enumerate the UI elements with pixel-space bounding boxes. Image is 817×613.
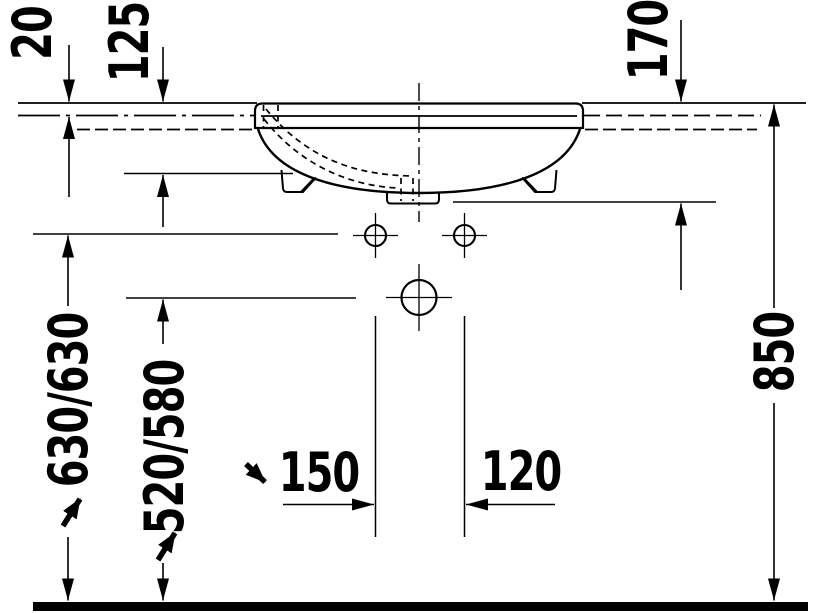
dimension-labels: 20 125 170 630/630 520/580 850 150 120 <box>2 0 807 534</box>
dim-label-120: 120 <box>481 441 561 504</box>
dim-label-170: 170 <box>618 0 681 80</box>
floor-bar <box>33 602 808 611</box>
pointer-arrow-630-icon <box>63 499 80 526</box>
left-foot-notch <box>301 179 314 192</box>
channel-curve-lower <box>264 119 398 188</box>
dim-label-125: 125 <box>99 2 162 82</box>
reference-lines <box>18 103 806 298</box>
right-foot-notch <box>525 179 538 192</box>
dim-label-850: 850 <box>744 312 807 392</box>
washbasin-outline <box>255 83 583 222</box>
dim-label-150: 150 <box>279 442 359 505</box>
dim-label-20: 20 <box>2 6 65 60</box>
connection-points <box>353 213 487 537</box>
dim-label-630: 630/630 <box>38 313 101 488</box>
pointer-arrow-520-icon <box>158 533 175 560</box>
technical-drawing-page: 20 125 170 630/630 520/580 850 150 120 <box>0 0 817 613</box>
dim-label-520: 520/580 <box>134 360 197 535</box>
washbasin-dimension-drawing: 20 125 170 630/630 520/580 850 150 120 <box>0 0 817 613</box>
pointer-arrow-150-icon <box>246 464 265 482</box>
